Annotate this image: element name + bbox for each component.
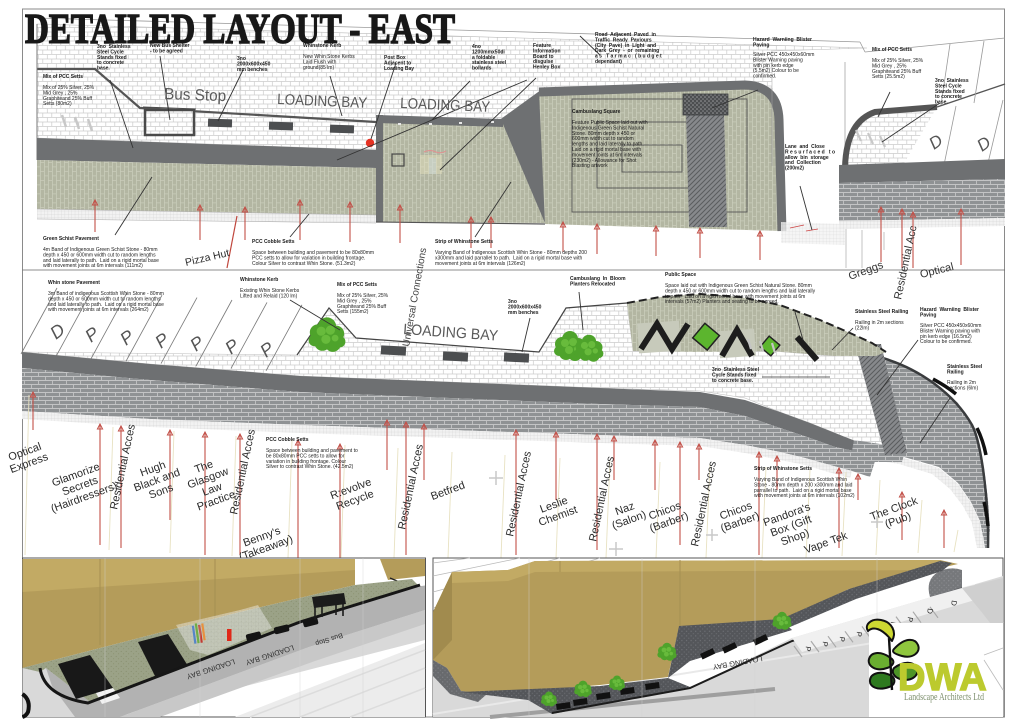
svg-text:Space between building and pav: Space between building and pavement tobe…	[266, 448, 358, 470]
svg-text:Feature Public Space laid out: Feature Public Space laid out withIndige…	[572, 120, 648, 169]
svg-text:PCC Cobble Setts: PCC Cobble Setts	[266, 437, 309, 443]
svg-text:Cambuslang Square: Cambuslang Square	[572, 109, 621, 115]
svg-text:Stainless Steel Railing: Stainless Steel Railing	[855, 309, 908, 315]
svg-text:DETAILED LAYOUT - EAST: DETAILED LAYOUT - EAST	[25, 7, 455, 53]
svg-text:Varying Band of Indigenous Sco: Varying Band of Indigenous Scottish Whin…	[754, 477, 855, 499]
svg-text:4m Band of Indigenous Green Sc: 4m Band of Indigenous Green Schist Stone…	[43, 247, 159, 269]
svg-text:Mix of PCC Setts: Mix of PCC Setts	[43, 74, 83, 80]
svg-text:Whin stone Pavement: Whin stone Pavement	[48, 280, 100, 286]
svg-text:Whinstone Kerb: Whinstone Kerb	[240, 277, 278, 283]
svg-text:Public Space: Public Space	[665, 272, 696, 278]
svg-text:Strip of Whinstone Setts: Strip of Whinstone Setts	[435, 239, 493, 245]
svg-text:Mix of PCC Setts: Mix of PCC Setts	[872, 47, 912, 53]
svg-text:3no Stainless SteelCycle Stan: 3no Stainless SteelCycle Stands fixedto …	[712, 367, 760, 384]
svg-text:Landscape Architects Ltd: Landscape Architects Ltd	[904, 692, 985, 703]
svg-text:Strip of Whinstone Setts: Strip of Whinstone Setts	[754, 466, 812, 472]
svg-text:PCC Cobble Setts: PCC Cobble Setts	[252, 239, 295, 245]
svg-text:Green Schist Pavement: Green Schist Pavement	[43, 236, 99, 242]
svg-text:Railing in 2msections (6lm): Railing in 2msections (6lm)	[947, 380, 978, 391]
svg-text:Bus Stop: Bus Stop	[164, 86, 227, 105]
svg-text:Mix of PCC Setts: Mix of PCC Setts	[337, 282, 377, 288]
svg-text:3m Band of indigenous Scottish: 3m Band of indigenous Scottish Whin Ston…	[48, 291, 164, 313]
svg-text:Existing Whin Stone KerbsLifte: Existing Whin Stone KerbsLifted and Rela…	[240, 288, 300, 299]
